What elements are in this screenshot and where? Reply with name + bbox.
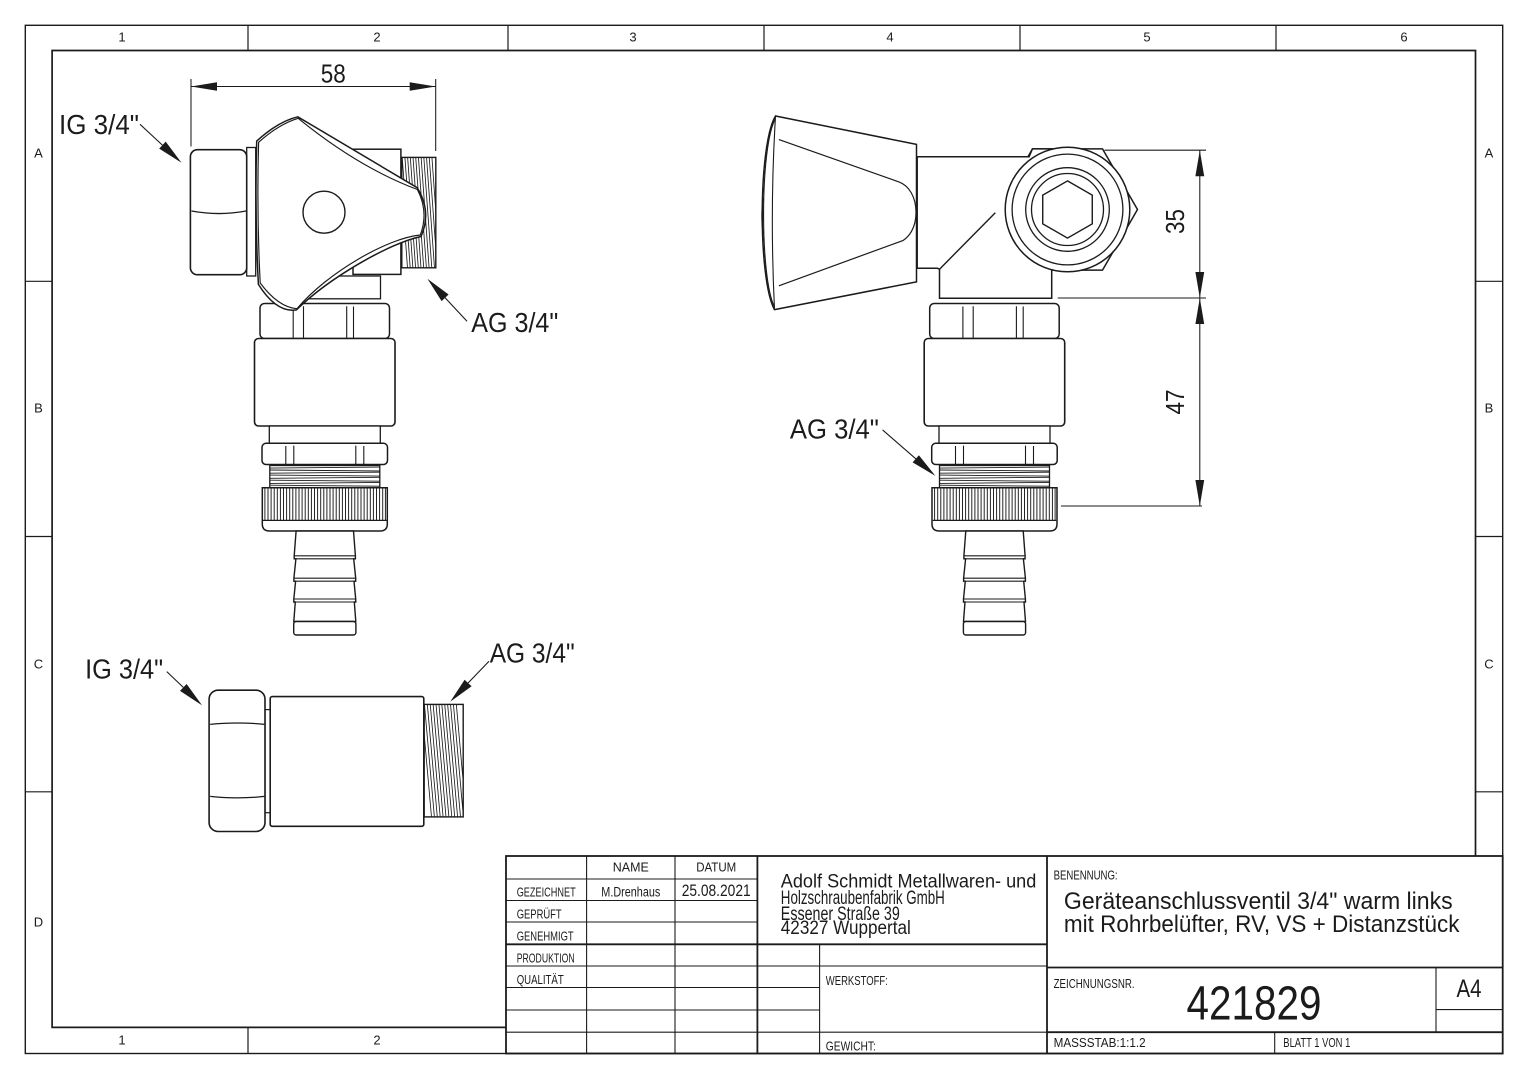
svg-text:C: C — [34, 657, 43, 672]
svg-text:AG 3/4": AG 3/4" — [790, 414, 879, 445]
svg-text:PRODUKTION: PRODUKTION — [517, 951, 575, 965]
svg-text:3: 3 — [629, 30, 636, 45]
svg-text:C: C — [1484, 657, 1493, 672]
svg-text:WERKSTOFF:: WERKSTOFF: — [826, 974, 888, 988]
svg-text:AG 3/4": AG 3/4" — [471, 307, 558, 338]
svg-text:DATUM: DATUM — [696, 861, 736, 875]
svg-text:1: 1 — [118, 1033, 125, 1048]
svg-text:4: 4 — [886, 30, 893, 45]
svg-text:IG 3/4": IG 3/4" — [59, 109, 139, 140]
svg-text:NAME: NAME — [613, 861, 649, 875]
svg-text:2: 2 — [373, 30, 380, 45]
svg-text:A4: A4 — [1457, 975, 1482, 1003]
svg-text:D: D — [34, 915, 43, 930]
svg-text:GEWICHT:: GEWICHT: — [826, 1040, 876, 1054]
svg-text:QUALITÄT: QUALITÄT — [517, 973, 564, 987]
svg-text:GEPRÜFT: GEPRÜFT — [517, 907, 562, 921]
svg-text:A: A — [1485, 146, 1494, 161]
svg-text:BENENNUNG:: BENENNUNG: — [1054, 868, 1118, 882]
svg-text:M.Drenhaus: M.Drenhaus — [601, 885, 660, 900]
svg-text:BLATT 1 VON 1: BLATT 1 VON 1 — [1283, 1036, 1350, 1050]
svg-text:ZEICHNUNGSNR.: ZEICHNUNGSNR. — [1054, 977, 1135, 991]
svg-text:6: 6 — [1400, 30, 1407, 45]
svg-text:47: 47 — [1160, 390, 1190, 415]
svg-text:mit Rohrbelüfter, RV, VS + Dis: mit Rohrbelüfter, RV, VS + Distanzstück — [1064, 911, 1461, 938]
svg-text:1: 1 — [118, 30, 125, 45]
svg-text:MASSSTAB:1:1.2: MASSSTAB:1:1.2 — [1054, 1036, 1146, 1050]
svg-text:GENEHMIGT: GENEHMIGT — [517, 930, 574, 944]
svg-text:B: B — [1485, 401, 1494, 416]
svg-text:B: B — [34, 401, 43, 416]
svg-text:58: 58 — [321, 59, 346, 89]
svg-text:25.08.2021: 25.08.2021 — [682, 882, 751, 900]
svg-text:A: A — [34, 146, 43, 161]
svg-text:421829: 421829 — [1187, 977, 1322, 1030]
svg-text:AG 3/4": AG 3/4" — [490, 637, 575, 668]
svg-text:5: 5 — [1143, 30, 1150, 45]
svg-text:2: 2 — [373, 1033, 380, 1048]
svg-text:42327 Wuppertal: 42327 Wuppertal — [781, 918, 911, 939]
svg-text:35: 35 — [1160, 209, 1190, 234]
svg-text:GEZEICHNET: GEZEICHNET — [517, 886, 576, 900]
svg-text:IG 3/4": IG 3/4" — [85, 654, 163, 685]
